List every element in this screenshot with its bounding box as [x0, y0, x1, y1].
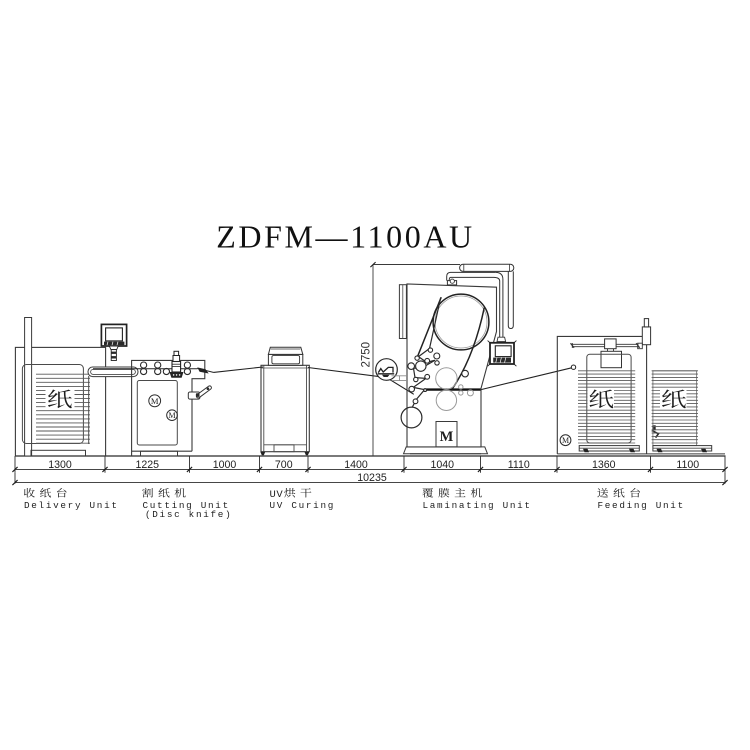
svg-text:1100: 1100	[676, 459, 699, 471]
svg-text:1360: 1360	[592, 459, 616, 471]
svg-text:700: 700	[275, 459, 293, 471]
svg-text:1300: 1300	[48, 459, 72, 471]
svg-text:ZDFM—1100AU: ZDFM—1100AU	[216, 219, 475, 255]
svg-text:2750: 2750	[361, 342, 373, 368]
svg-text:M: M	[168, 411, 175, 420]
svg-text:Feeding Unit: Feeding Unit	[598, 500, 685, 511]
svg-text:1000: 1000	[213, 459, 237, 471]
svg-text:1040: 1040	[430, 459, 454, 471]
svg-text:Delivery Unit: Delivery Unit	[24, 500, 119, 511]
svg-text:M: M	[151, 396, 159, 406]
svg-text:1225: 1225	[135, 459, 159, 471]
svg-text:1110: 1110	[508, 459, 530, 471]
svg-text:M: M	[562, 436, 569, 445]
svg-text:M: M	[440, 429, 454, 445]
svg-text:UV Curing: UV Curing	[270, 500, 336, 511]
svg-text:(Disc knife): (Disc knife)	[145, 509, 232, 520]
svg-text:1400: 1400	[344, 459, 368, 471]
svg-text:10235: 10235	[357, 472, 387, 484]
svg-text:Laminating Unit: Laminating Unit	[423, 500, 532, 511]
